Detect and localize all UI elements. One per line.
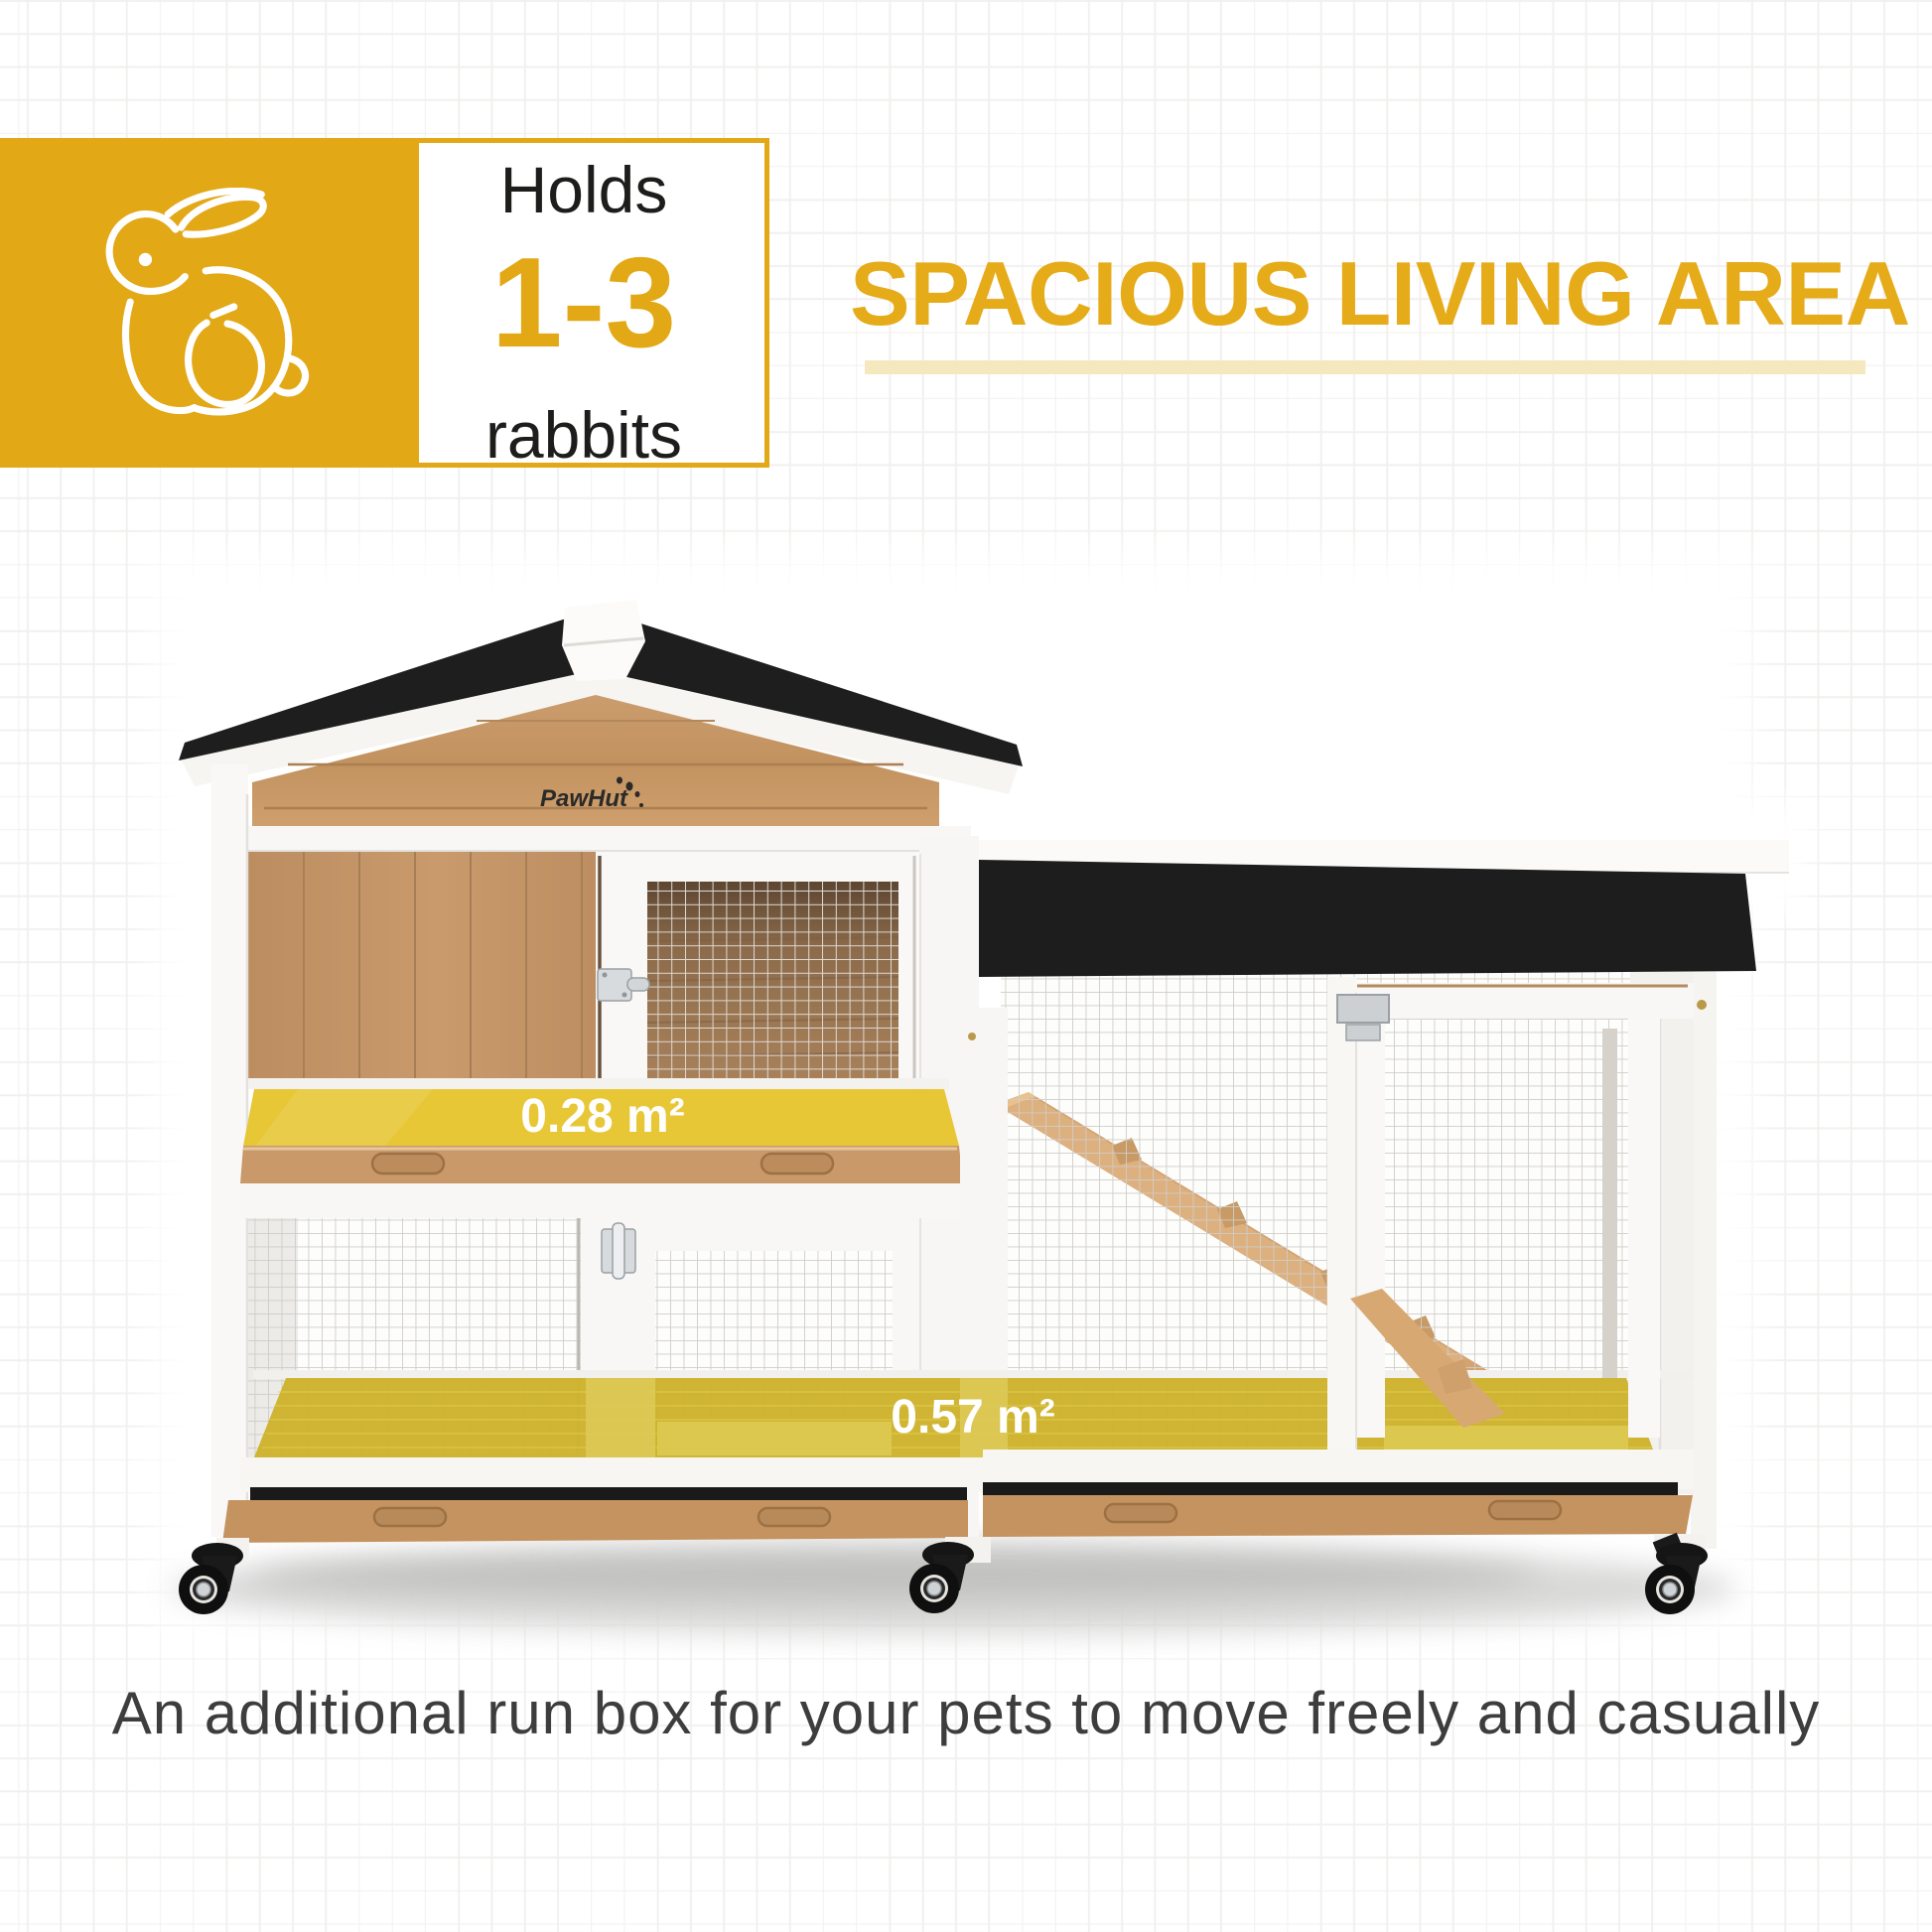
svg-text:PawHut: PawHut (540, 785, 628, 812)
svg-text:0.57 m²: 0.57 m² (891, 1391, 1054, 1444)
svg-text:0.28 m²: 0.28 m² (520, 1090, 684, 1143)
